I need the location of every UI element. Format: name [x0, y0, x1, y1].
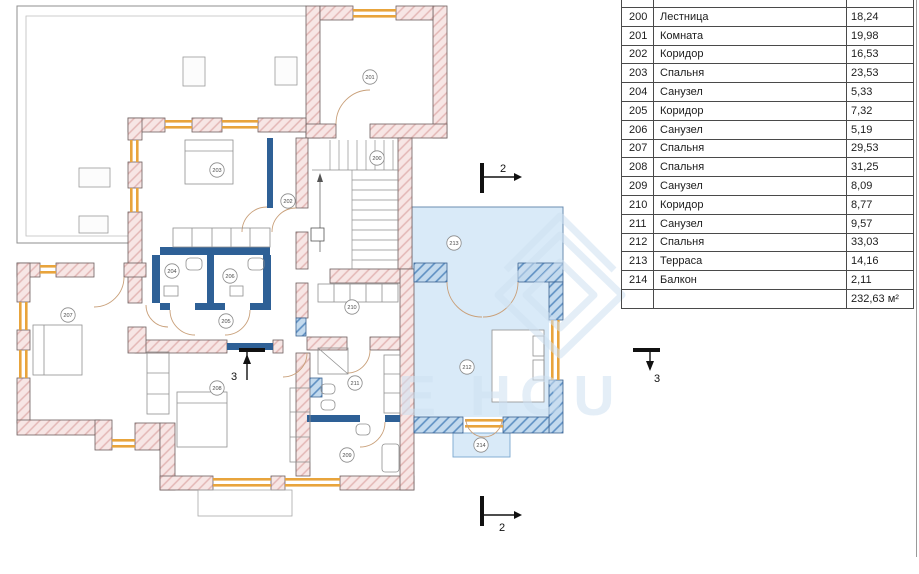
legend-cell-name: Санузел — [654, 83, 846, 101]
legend-row: 210Коридор8,77 — [622, 195, 913, 214]
legend-cell-name: Спальня — [654, 158, 846, 176]
legend-cell-name: Коридор — [654, 102, 846, 120]
room-marker: 202 — [281, 194, 295, 208]
legend-cell-number: 206 — [622, 121, 654, 139]
legend-cell-number: 202 — [622, 46, 654, 64]
legend-row: 206Санузел5,19 — [622, 120, 913, 139]
legend-cell-area: 5,33 — [846, 83, 913, 101]
legend-row: 213Терраса14,16 — [622, 251, 913, 270]
legend-cell-name: Коридор — [654, 196, 846, 214]
legend-cell-number: 207 — [622, 140, 654, 158]
legend-cell-name: Санузел — [654, 121, 846, 139]
legend-total-area: 232,63 м² — [846, 290, 913, 308]
legend-cell-area: 29,53 — [846, 140, 913, 158]
room-marker: 203 — [210, 163, 224, 177]
legend-cell-name: Коридор — [654, 46, 846, 64]
legend-cell-number — [622, 290, 654, 308]
sink-206 — [230, 286, 243, 296]
stairs — [312, 140, 398, 269]
room-marker-label: 203 — [212, 168, 221, 174]
legend-cell-area: 23,53 — [846, 64, 913, 82]
legend-cell-area: 33,03 — [846, 234, 913, 252]
room-marker-label: 212 — [462, 365, 471, 371]
wardrobe-202 — [173, 228, 270, 247]
legend-cell-number: 211 — [622, 215, 654, 233]
room-marker: 211 — [348, 376, 362, 390]
toilet-204 — [186, 258, 202, 270]
svg-text:3: 3 — [231, 371, 237, 383]
legend-row: 204Санузел5,33 — [622, 82, 913, 101]
legend-cell-area: 16,53 — [846, 46, 913, 64]
skylights — [79, 57, 297, 233]
legend-cell-area: 9,57 — [846, 215, 913, 233]
legend-cell-name — [654, 0, 846, 7]
legend-row: 202Коридор16,53 — [622, 45, 913, 64]
room-marker-label: 205 — [221, 319, 230, 325]
legend-cell-number: 200 — [622, 8, 654, 26]
room-marker: 206 — [223, 269, 237, 283]
wardrobe-210 — [318, 284, 398, 302]
toilet-211b — [321, 400, 335, 410]
legend-table-body: 200Лестница18,24201Комната19,98202Коридо… — [622, 7, 913, 289]
legend-cell-name: Спальня — [654, 234, 846, 252]
wardrobe-208-left — [147, 352, 169, 414]
legend-cell-number: 208 — [622, 158, 654, 176]
room-marker: 200 — [370, 151, 384, 165]
legend-cell-number: 205 — [622, 102, 654, 120]
legend-row: 212Спальня33,03 — [622, 233, 913, 252]
room-marker: 205 — [219, 314, 233, 328]
legend-row: 200Лестница18,24 — [622, 7, 913, 26]
shaft-box — [311, 228, 324, 241]
legend-cell-name: Спальня — [654, 64, 846, 82]
legend-cell-number: 209 — [622, 177, 654, 195]
bed-207 — [33, 325, 82, 375]
watermark-text: E HOU — [398, 364, 624, 428]
room-marker-label: 213 — [449, 241, 458, 247]
canopy-below — [198, 490, 292, 516]
legend-cell-area: 5,19 — [846, 121, 913, 139]
room-marker: 207 — [61, 308, 75, 322]
room-marker-label: 204 — [167, 269, 176, 275]
room-marker: 208 — [210, 381, 224, 395]
legend-cell-number: 212 — [622, 234, 654, 252]
legend-cell-number — [622, 0, 654, 7]
legend-cell-area — [846, 0, 913, 7]
legend-row: 211Санузел9,57 — [622, 214, 913, 233]
room-marker-label: 211 — [351, 381, 360, 387]
legend-row: 201Комната19,98 — [622, 26, 913, 45]
room-marker-label: 214 — [476, 443, 485, 449]
section-marker-3-plan: 3 — [231, 348, 265, 383]
svg-text:3: 3 — [654, 373, 660, 385]
legend-cell-name: Санузел — [654, 215, 846, 233]
room-marker: 201 — [363, 70, 377, 84]
room-marker-label: 202 — [283, 199, 292, 205]
room-marker: 212 — [460, 360, 474, 374]
legend-cell-number: 214 — [622, 271, 654, 289]
toilet-209 — [356, 424, 370, 435]
legend-cell-name: Спальня — [654, 140, 846, 158]
room-marker-label: 208 — [212, 386, 221, 392]
svg-text:2: 2 — [500, 163, 506, 175]
legend-row: 209Санузел8,09 — [622, 176, 913, 195]
legend-row: 214Балкон2,11 — [622, 270, 913, 289]
legend-cell-name: Балкон — [654, 271, 846, 289]
room-marker: 214 — [474, 438, 488, 452]
legend-total-row: 232,63 м² — [622, 289, 913, 308]
legend-row: 208Спальня31,25 — [622, 157, 913, 176]
legend-cell-name — [654, 290, 846, 308]
legend-cell-area: 18,24 — [846, 8, 913, 26]
legend-cell-area: 2,11 — [846, 271, 913, 289]
room-marker-label: 209 — [342, 453, 351, 459]
bed-203 — [185, 140, 233, 184]
bathtub-209 — [382, 444, 399, 472]
legend-partial-row — [622, 0, 913, 7]
section-marker-2-top: 2 — [480, 163, 522, 193]
legend-cell-area: 7,32 — [846, 102, 913, 120]
legend-row: 207Спальня29,53 — [622, 139, 913, 158]
legend-cell-number: 203 — [622, 64, 654, 82]
legend-cell-number: 213 — [622, 252, 654, 270]
legend-row: 203Спальня23,53 — [622, 63, 913, 82]
sink-204 — [164, 286, 178, 296]
legend-cell-name: Санузел — [654, 177, 846, 195]
room-marker-label: 210 — [347, 305, 356, 311]
room-marker: 209 — [340, 448, 354, 462]
legend-cell-name: Комната — [654, 27, 846, 45]
room-marker: 210 — [345, 300, 359, 314]
legend-cell-area: 31,25 — [846, 158, 913, 176]
room-marker-label: 201 — [365, 75, 374, 81]
room-marker-label: 207 — [63, 313, 72, 319]
section-marker-2-bottom: 2 — [480, 496, 522, 534]
section-marker-3-right: 3 — [633, 348, 660, 385]
toilet-206 — [248, 258, 264, 270]
legend-cell-number: 204 — [622, 83, 654, 101]
legend-cell-name: Терраса — [654, 252, 846, 270]
floor-plan-sheet: E HOU 2 2 3 3 20020120220320420520620720… — [0, 0, 919, 574]
legend-cell-area: 19,98 — [846, 27, 913, 45]
legend-cell-number: 201 — [622, 27, 654, 45]
room-marker: 213 — [447, 236, 461, 250]
legend-cell-area: 8,09 — [846, 177, 913, 195]
room-marker-label: 200 — [372, 156, 381, 162]
legend-cell-name: Лестница — [654, 8, 846, 26]
legend-table: 200Лестница18,24201Комната19,98202Коридо… — [621, 0, 914, 309]
legend-cell-area: 8,77 — [846, 196, 913, 214]
legend-row: 205Коридор7,32 — [622, 101, 913, 120]
bed-208 — [177, 392, 227, 447]
legend-cell-number: 210 — [622, 196, 654, 214]
room-marker: 204 — [165, 264, 179, 278]
room-marker-label: 206 — [225, 274, 234, 280]
svg-text:2: 2 — [499, 522, 505, 534]
legend-cell-area: 14,16 — [846, 252, 913, 270]
toilet-211a — [321, 384, 335, 394]
